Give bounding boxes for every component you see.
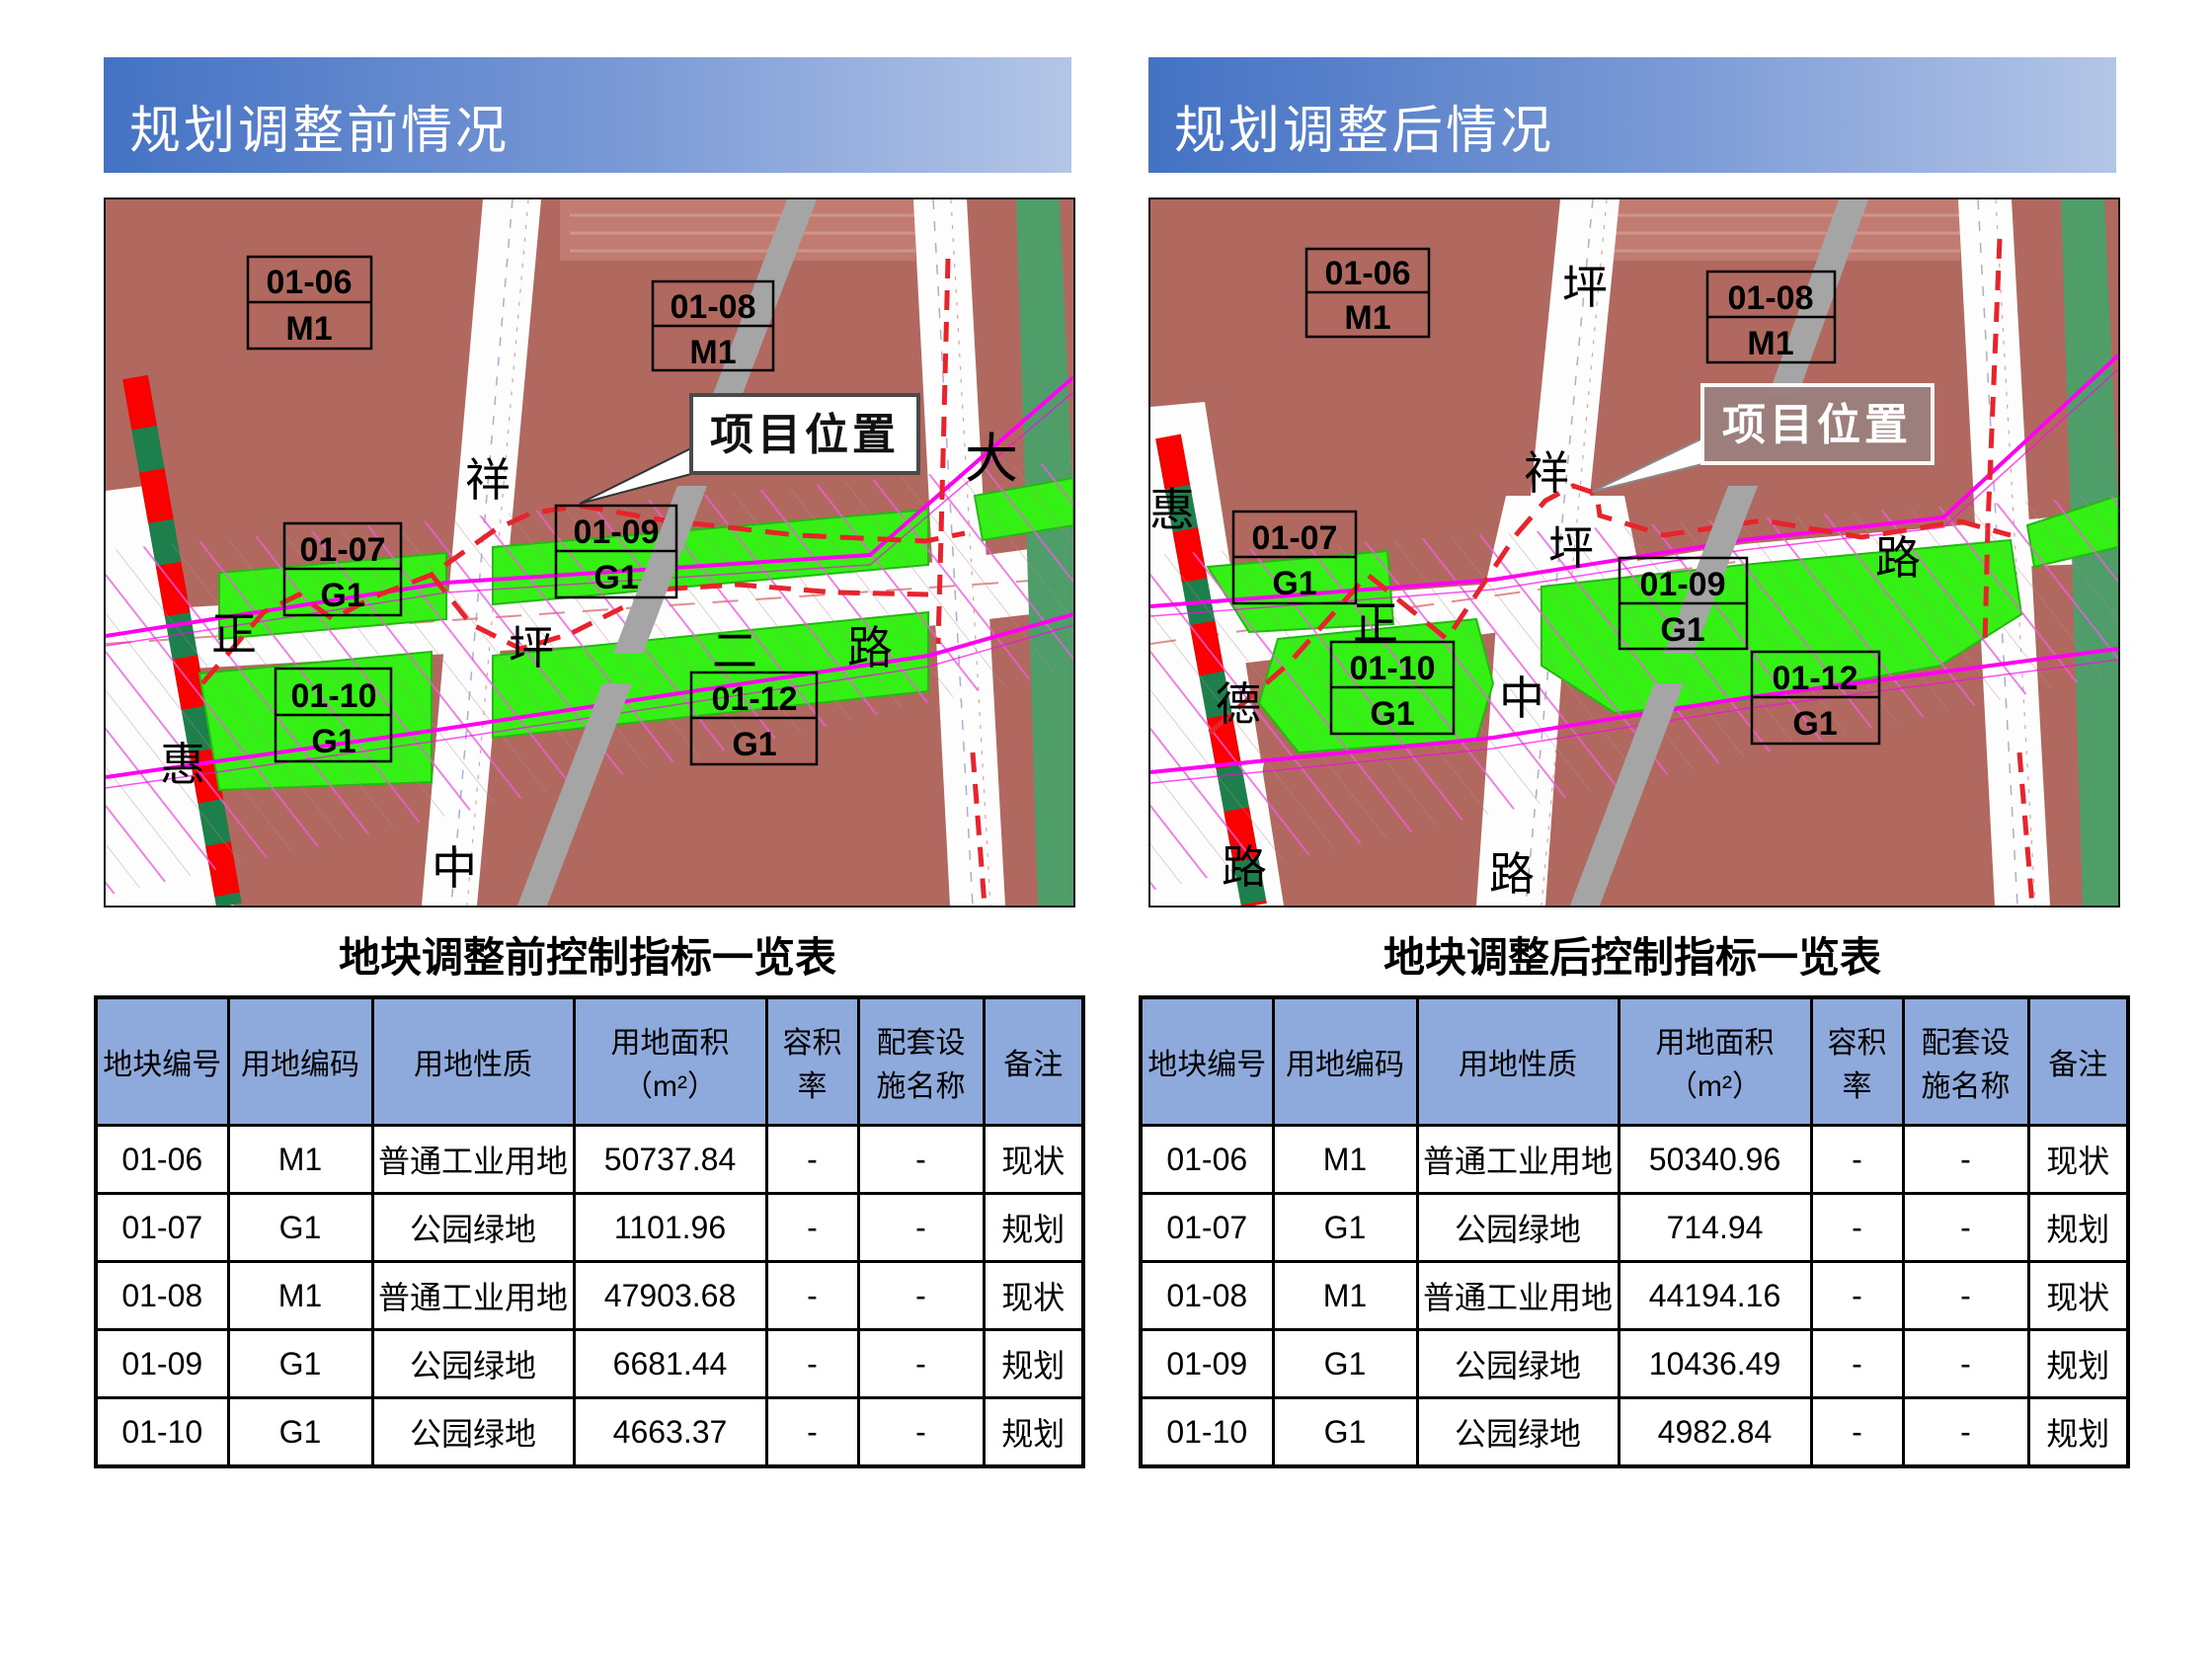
parcel-code: 01-06 bbox=[1325, 255, 1411, 292]
cell: 现状 bbox=[2028, 1126, 2128, 1194]
cell: - bbox=[1811, 1194, 1903, 1262]
cell: 现状 bbox=[984, 1262, 1083, 1330]
banner-before-text: 规划调整前情况 bbox=[129, 89, 510, 163]
parcel-code: 01-10 bbox=[291, 677, 377, 715]
road-char: 坪 bbox=[509, 622, 554, 673]
callout-text: 项目位置 bbox=[710, 411, 900, 459]
col-header: 配套设 施名称 bbox=[858, 997, 984, 1126]
table-row: 01-08M1普通工业用地44194.16--现状 bbox=[1141, 1262, 2128, 1330]
col-header: 用地面积 （m²） bbox=[1619, 997, 1811, 1126]
cell: - bbox=[1811, 1262, 1903, 1330]
cell: G1 bbox=[228, 1194, 372, 1262]
parcel-use: G1 bbox=[593, 559, 638, 596]
parcel-code: 01-12 bbox=[712, 680, 798, 718]
cell: 现状 bbox=[984, 1126, 1083, 1194]
parcel-code: 01-10 bbox=[1350, 650, 1436, 687]
parcel-code: 01-09 bbox=[574, 513, 660, 551]
parcel-use: G1 bbox=[311, 723, 355, 760]
cell: 规划 bbox=[984, 1398, 1083, 1467]
road-char: 中 bbox=[432, 842, 477, 894]
col-header: 用地面积 （m²） bbox=[574, 997, 766, 1126]
cell: 公园绿地 bbox=[372, 1398, 574, 1467]
parcel-code: 01-12 bbox=[1773, 660, 1858, 697]
cell: 01-10 bbox=[1141, 1398, 1273, 1467]
parcel-use: M1 bbox=[1747, 325, 1793, 362]
road-char: 路 bbox=[847, 622, 893, 673]
col-header: 备注 bbox=[2028, 997, 2128, 1126]
parcel-use: G1 bbox=[1792, 705, 1837, 743]
cell: 1101.96 bbox=[574, 1194, 766, 1262]
cell: G1 bbox=[228, 1330, 372, 1398]
cell: - bbox=[766, 1194, 858, 1262]
road-char: 二 bbox=[712, 625, 757, 676]
cell: 普通工业用地 bbox=[1417, 1262, 1619, 1330]
col-header: 备注 bbox=[984, 997, 1083, 1126]
parcel-use: M1 bbox=[1344, 299, 1390, 337]
cell: G1 bbox=[1273, 1398, 1417, 1467]
road-char: 路 bbox=[1489, 848, 1535, 900]
parcel-use: G1 bbox=[1272, 565, 1316, 602]
parcel-code: 01-06 bbox=[267, 264, 353, 301]
table-row: 01-09G1公园绿地6681.44--规划 bbox=[96, 1330, 1083, 1398]
cell: M1 bbox=[228, 1126, 372, 1194]
road-char: 祥 bbox=[465, 454, 511, 506]
cell: 01-08 bbox=[96, 1262, 228, 1330]
cell: 4663.37 bbox=[574, 1398, 766, 1467]
cell: 50737.84 bbox=[574, 1126, 766, 1194]
cell: 01-07 bbox=[96, 1194, 228, 1262]
cell: 10436.49 bbox=[1619, 1330, 1811, 1398]
table-row: 01-08M1普通工业用地47903.68--现状 bbox=[96, 1262, 1083, 1330]
table-row: 01-06M1普通工业用地50737.84--现状 bbox=[96, 1126, 1083, 1194]
road-char: 大 bbox=[965, 430, 1018, 489]
cell: 现状 bbox=[2028, 1262, 2128, 1330]
cell: 50340.96 bbox=[1619, 1126, 1811, 1194]
cell: G1 bbox=[228, 1398, 372, 1467]
table-title-after: 地块调整后控制指标一览表 bbox=[1139, 924, 2126, 985]
cell: - bbox=[1903, 1194, 2028, 1262]
road-char: 德 bbox=[1216, 678, 1261, 730]
table-row: 01-06M1普通工业用地50340.96--现状 bbox=[1141, 1126, 2128, 1194]
table-title-before: 地块调整前控制指标一览表 bbox=[94, 924, 1081, 985]
table-before: 地块编号 用地编码 用地性质 用地面积 （m²） 容积率 配套设 施名称 备注 … bbox=[94, 995, 1085, 1468]
road-char: 路 bbox=[1222, 841, 1267, 893]
cell: 公园绿地 bbox=[1417, 1330, 1619, 1398]
parcel-code: 01-07 bbox=[300, 531, 386, 569]
table-header-row: 地块编号 用地编码 用地性质 用地面积 （m²） 容积率 配套设 施名称 备注 bbox=[96, 997, 1083, 1126]
banner-after: 规划调整后情况 bbox=[1148, 57, 2116, 173]
cell: 规划 bbox=[984, 1330, 1083, 1398]
banner-before: 规划调整前情况 bbox=[104, 57, 1071, 173]
cell: - bbox=[766, 1262, 858, 1330]
cell: - bbox=[1903, 1126, 2028, 1194]
cell: - bbox=[766, 1398, 858, 1467]
cell: 4982.84 bbox=[1619, 1398, 1811, 1467]
cell: - bbox=[858, 1262, 984, 1330]
parcel-use: G1 bbox=[1370, 695, 1414, 733]
table-row: 01-10G1公园绿地4982.84--规划 bbox=[1141, 1398, 2128, 1467]
table-row: 01-10G1公园绿地4663.37--规划 bbox=[96, 1398, 1083, 1467]
col-header: 用地编码 bbox=[1273, 997, 1417, 1126]
road-char: 正 bbox=[211, 608, 257, 660]
parcel-use: G1 bbox=[320, 577, 364, 614]
cell: 44194.16 bbox=[1619, 1262, 1811, 1330]
table-row: 01-07G1公园绿地1101.96--规划 bbox=[96, 1194, 1083, 1262]
cell: M1 bbox=[1273, 1262, 1417, 1330]
cell: 公园绿地 bbox=[1417, 1398, 1619, 1467]
cell: 规划 bbox=[2028, 1194, 2128, 1262]
cell: 规划 bbox=[2028, 1330, 2128, 1398]
parcel-code: 01-08 bbox=[671, 288, 756, 326]
cell: - bbox=[858, 1126, 984, 1194]
col-header: 用地编码 bbox=[228, 997, 372, 1126]
cell: - bbox=[858, 1330, 984, 1398]
cell: 普通工业用地 bbox=[372, 1126, 574, 1194]
col-header: 地块编号 bbox=[1141, 997, 1273, 1126]
cell: G1 bbox=[1273, 1194, 1417, 1262]
cell: 01-10 bbox=[96, 1398, 228, 1467]
panel-before-adjustment: 规划调整前情况 bbox=[94, 0, 1081, 1659]
parcel-use: G1 bbox=[732, 726, 776, 763]
parcel-code: 01-07 bbox=[1252, 519, 1338, 557]
table-after: 地块编号 用地编码 用地性质 用地面积 （m²） 容积率 配套设 施名称 备注 … bbox=[1139, 995, 2130, 1468]
col-header: 容积率 bbox=[766, 997, 858, 1126]
road-char: 惠 bbox=[160, 739, 205, 790]
cell: 47903.68 bbox=[574, 1262, 766, 1330]
callout-text: 项目位置 bbox=[1722, 401, 1912, 449]
cell: - bbox=[1903, 1330, 2028, 1398]
cell: 普通工业用地 bbox=[1417, 1126, 1619, 1194]
map-after-svg: 坪 祥 惠 德 路 正 坪 路 中 路 01-06 M1 01-08 M1 01… bbox=[1150, 199, 2118, 906]
cell: 01-09 bbox=[96, 1330, 228, 1398]
map-before: 祥 大 正 坪 二 路 惠 中 01-06 M1 01-08 M1 01-07 … bbox=[104, 197, 1075, 908]
parcel-use: G1 bbox=[1660, 611, 1704, 649]
cell: M1 bbox=[1273, 1126, 1417, 1194]
cell: - bbox=[766, 1126, 858, 1194]
cell: - bbox=[1811, 1330, 1903, 1398]
road-char: 坪 bbox=[1562, 262, 1608, 313]
table-row: 01-09G1公园绿地10436.49--规划 bbox=[1141, 1330, 2128, 1398]
col-header: 容积率 bbox=[1811, 997, 1903, 1126]
cell: 01-06 bbox=[96, 1126, 228, 1194]
cell: 01-06 bbox=[1141, 1126, 1273, 1194]
panel-after-adjustment: 规划调整后情况 bbox=[1139, 0, 2126, 1659]
cell: 714.94 bbox=[1619, 1194, 1811, 1262]
cell: 01-09 bbox=[1141, 1330, 1273, 1398]
table-header-row: 地块编号 用地编码 用地性质 用地面积 （m²） 容积率 配套设 施名称 备注 bbox=[1141, 997, 2128, 1126]
cell: - bbox=[858, 1194, 984, 1262]
cell: 公园绿地 bbox=[1417, 1194, 1619, 1262]
cell: G1 bbox=[1273, 1330, 1417, 1398]
cell: 规划 bbox=[2028, 1398, 2128, 1467]
road-char: 路 bbox=[1875, 532, 1921, 584]
col-header: 用地性质 bbox=[1417, 997, 1619, 1126]
col-header: 配套设 施名称 bbox=[1903, 997, 2028, 1126]
table-row: 01-07G1公园绿地714.94--规划 bbox=[1141, 1194, 2128, 1262]
cell: - bbox=[1903, 1398, 2028, 1467]
parcel-use: M1 bbox=[285, 310, 332, 348]
parcel-use: M1 bbox=[689, 334, 736, 371]
cell: 规划 bbox=[984, 1194, 1083, 1262]
cell: - bbox=[1903, 1262, 2028, 1330]
cell: 普通工业用地 bbox=[372, 1262, 574, 1330]
map-before-svg: 祥 大 正 坪 二 路 惠 中 01-06 M1 01-08 M1 01-07 … bbox=[106, 199, 1073, 906]
cell: - bbox=[766, 1330, 858, 1398]
road-char: 惠 bbox=[1150, 484, 1195, 535]
cell: 01-07 bbox=[1141, 1194, 1273, 1262]
map-after: 坪 祥 惠 德 路 正 坪 路 中 路 01-06 M1 01-08 M1 01… bbox=[1148, 197, 2120, 908]
banner-after-text: 规划调整后情况 bbox=[1174, 89, 1554, 163]
col-header: 用地性质 bbox=[372, 997, 574, 1126]
cell: - bbox=[1811, 1398, 1903, 1467]
cell: - bbox=[858, 1398, 984, 1467]
road-char: 祥 bbox=[1524, 447, 1569, 499]
col-header: 地块编号 bbox=[96, 997, 228, 1126]
cell: M1 bbox=[228, 1262, 372, 1330]
parcel-code: 01-08 bbox=[1728, 279, 1814, 317]
cell: 公园绿地 bbox=[372, 1330, 574, 1398]
road-char: 中 bbox=[1499, 672, 1544, 724]
cell: 6681.44 bbox=[574, 1330, 766, 1398]
cell: 01-08 bbox=[1141, 1262, 1273, 1330]
cell: - bbox=[1811, 1126, 1903, 1194]
parcel-code: 01-09 bbox=[1640, 566, 1726, 603]
cell: 公园绿地 bbox=[372, 1194, 574, 1262]
road-char: 坪 bbox=[1548, 522, 1594, 574]
